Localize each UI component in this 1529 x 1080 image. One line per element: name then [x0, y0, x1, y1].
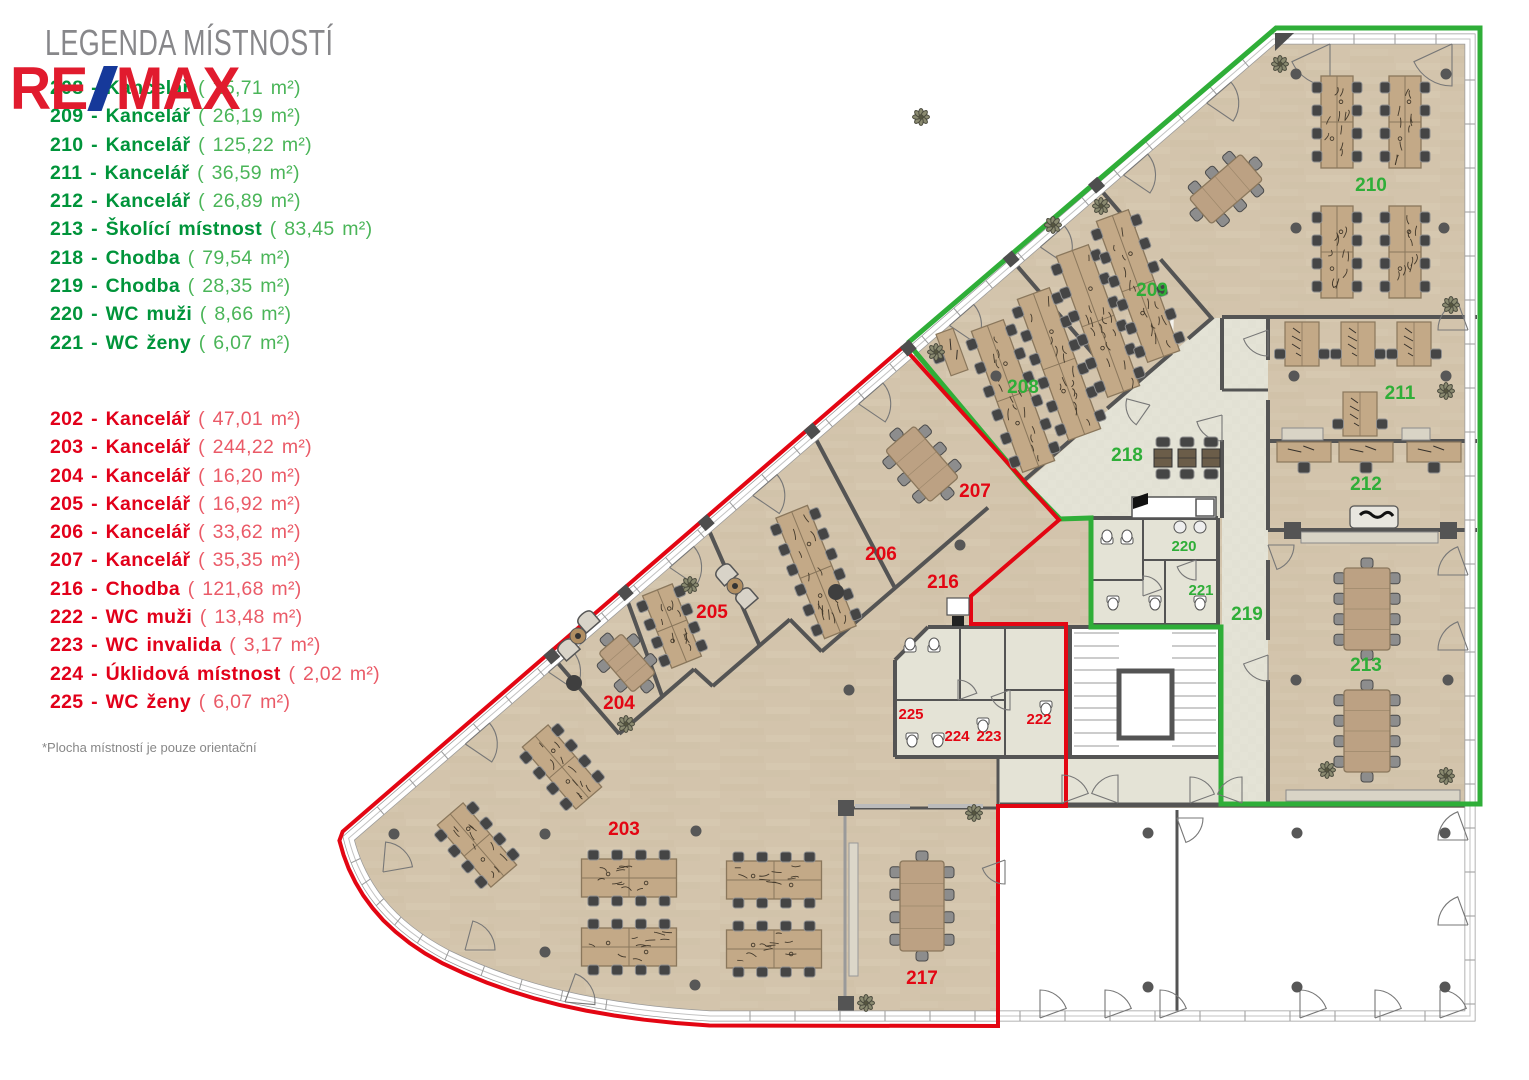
svg-text:216: 216	[927, 572, 959, 593]
svg-text:222: 222	[1026, 711, 1051, 728]
svg-text:224: 224	[944, 728, 970, 745]
svg-text:221: 221	[1188, 582, 1213, 599]
svg-text:204: 204	[603, 693, 635, 714]
svg-text:218: 218	[1111, 445, 1143, 466]
svg-text:213: 213	[1350, 655, 1382, 676]
svg-text:209: 209	[1136, 280, 1168, 301]
svg-text:217: 217	[906, 968, 938, 989]
svg-text:210: 210	[1355, 175, 1387, 196]
svg-text:220: 220	[1171, 538, 1196, 555]
svg-text:205: 205	[696, 602, 728, 623]
svg-text:206: 206	[865, 544, 897, 565]
svg-text:225: 225	[898, 706, 923, 723]
svg-text:219: 219	[1231, 604, 1263, 625]
svg-text:223: 223	[976, 728, 1001, 745]
svg-text:211: 211	[1385, 383, 1416, 404]
svg-text:212: 212	[1350, 474, 1382, 495]
svg-text:207: 207	[959, 481, 991, 502]
svg-text:208: 208	[1007, 377, 1039, 398]
svg-text:203: 203	[608, 819, 640, 840]
